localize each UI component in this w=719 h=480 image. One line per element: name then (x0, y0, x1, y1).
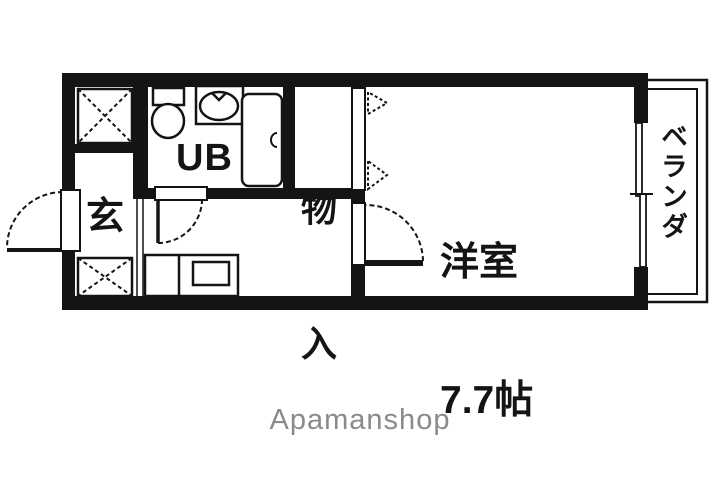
genkan-label: 玄 (86, 198, 124, 236)
apamanshop-watermark: Apamanshop (229, 404, 491, 437)
storage-label-char1: 物 (296, 186, 342, 231)
balcony-label: ベランダ (658, 122, 685, 272)
genkan-step-line (137, 199, 143, 296)
storage-label-char2: 入 (296, 321, 342, 366)
toilet-icon (152, 88, 184, 138)
floorplan-image: 玄 UB 物 入 洋室 7.7帖 ベランダ Apamanshop (0, 0, 719, 480)
entrance-door-icon (7, 190, 80, 251)
storage-label: 物 入 (296, 96, 342, 456)
kitchen-counter-icon (145, 255, 238, 296)
closet-folding-door-icon (352, 88, 387, 190)
closet-cross-top-icon (78, 89, 132, 143)
closet-cross-bottom-icon (78, 258, 132, 296)
unit-bath-label: UB (176, 139, 233, 177)
room-door-icon (352, 203, 423, 265)
western-room-name: 洋室 (440, 240, 533, 286)
bathtub-icon (242, 94, 282, 186)
washbasin-icon (196, 86, 243, 124)
bathroom-door-icon (155, 187, 207, 243)
